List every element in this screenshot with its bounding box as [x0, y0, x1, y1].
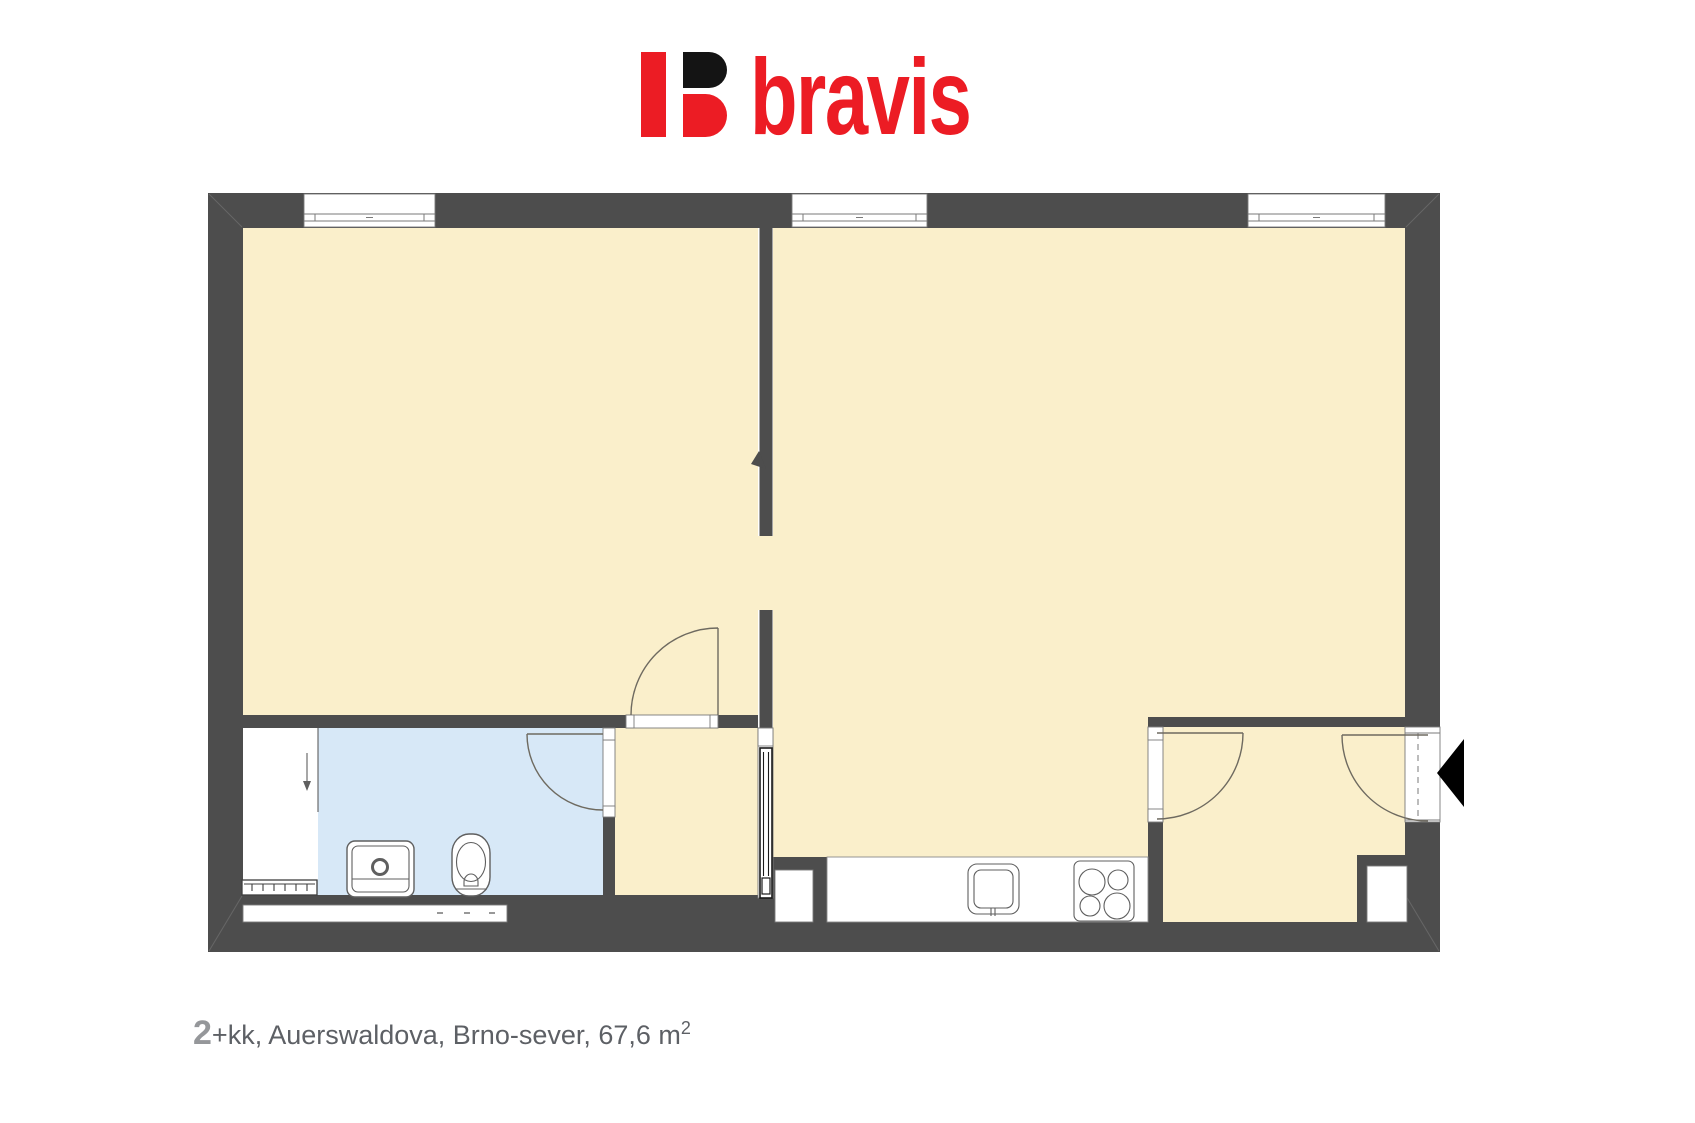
radiator-body: [242, 880, 317, 895]
right-wall: [1405, 193, 1440, 952]
left-room-floor: [243, 228, 758, 715]
left-wall: [208, 193, 243, 952]
door-frame: [626, 715, 634, 728]
basin-outer: [347, 841, 414, 897]
bottom-wall-right: [1163, 922, 1440, 952]
caption-text: +kk, Auerswaldova, Brno-sever, 67,6 m: [212, 1020, 681, 1050]
sliding-frame: [758, 728, 773, 746]
sliding-leaf: [760, 748, 772, 898]
room-fills: [243, 228, 1407, 922]
listing-caption: 2+kk, Auerswaldova, Brno-sever, 67,6 m2: [193, 1014, 691, 1053]
bottom-wall-window: [243, 905, 507, 922]
sliding-leaf-end: [762, 878, 770, 894]
door-frame: [603, 728, 615, 740]
caption-superscript: 2: [681, 1018, 691, 1038]
divider-wall-lower: [760, 610, 773, 728]
interior-wall-horizontal-right: [1148, 717, 1407, 727]
wardrobe-body: [243, 728, 318, 880]
hall-floor: [615, 728, 758, 895]
washbasin-icon: [347, 841, 414, 897]
niche-inset: [775, 870, 813, 922]
radiator-icon: [242, 880, 317, 895]
toilet-icon: [452, 834, 490, 896]
window-2: [792, 194, 927, 227]
entrance-direction-arrow: [1437, 739, 1464, 807]
floor-plan-page: bravis: [0, 0, 1695, 1123]
niche-inset: [1367, 866, 1407, 922]
door-opening: [603, 740, 615, 808]
door-frame: [710, 715, 718, 728]
kitchen-wall-niche: [775, 870, 813, 922]
wardrobe-column: [243, 728, 318, 880]
toilet-outer: [452, 834, 490, 896]
door-frame: [1148, 809, 1163, 822]
door-opening: [626, 715, 718, 728]
right-room-floor: [773, 228, 1407, 717]
caption-room-count: 2: [193, 1014, 212, 1052]
window-1: [304, 194, 435, 227]
kitchen-counter: [827, 857, 1148, 922]
door-opening: [1405, 727, 1440, 822]
window-glass: [1248, 194, 1385, 227]
window-glass: [792, 194, 927, 227]
divider-wall-upper: [760, 228, 773, 536]
counter-top: [827, 857, 1148, 922]
sliding-door: [758, 728, 773, 898]
kitchen-zone-floor: [773, 717, 1148, 857]
window-glass: [304, 194, 435, 227]
window-3: [1248, 194, 1385, 227]
door-frame: [603, 806, 615, 817]
room-passage-floor: [758, 536, 773, 610]
floor-plan-drawing: [0, 0, 1695, 1123]
entry-wall-niche: [1367, 866, 1407, 922]
door-opening: [1148, 727, 1163, 822]
